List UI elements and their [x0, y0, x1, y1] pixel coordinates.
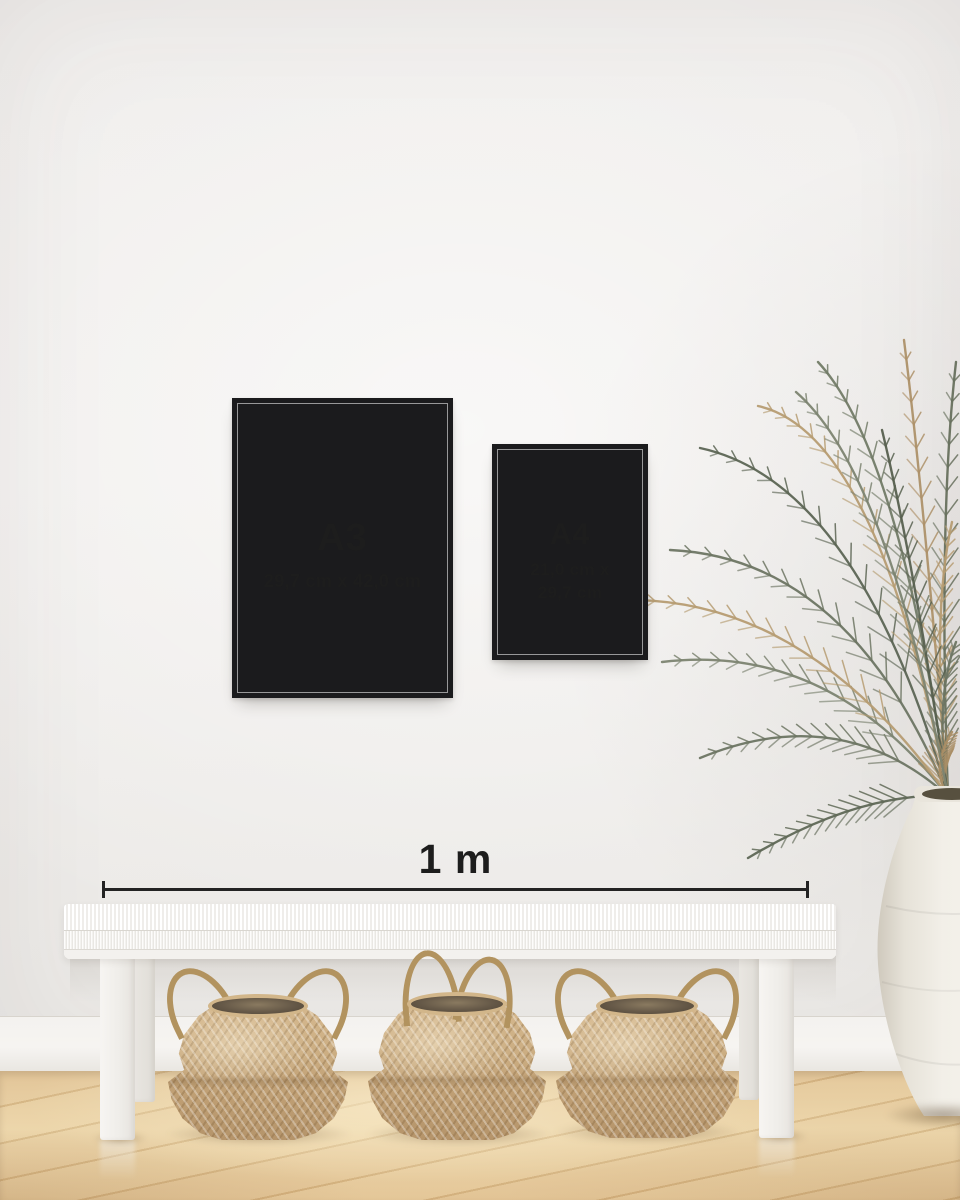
scale-label: 1 m: [102, 836, 809, 883]
leg-reflection-right: [759, 1138, 794, 1178]
bench-seat: [64, 904, 836, 959]
basket-opening: [407, 992, 507, 1016]
measurement-line: [102, 888, 809, 891]
room-scene: A3 29,7 cm x 42,0 cm A4 21,0 cm x 29,7 c…: [0, 0, 960, 1200]
poster-a4-label: A4: [550, 518, 590, 552]
poster-frame-a4: A4 21,0 cm x 29,7 cm: [492, 444, 648, 660]
basket-opening: [208, 994, 309, 1018]
poster-frame-a3: A3 29,7 cm x 42,0 cm: [232, 398, 453, 698]
poster-a4: A4 21,0 cm x 29,7 cm: [497, 449, 643, 655]
basket-body: [368, 1003, 546, 1140]
poster-a4-dimensions: 21,0 cm x 29,7 cm: [530, 559, 609, 605]
bench-leg-right-back: [739, 956, 759, 1100]
scale-left-tick: [102, 881, 105, 898]
bench-leg-left-back: [133, 956, 155, 1102]
scale-right-tick: [806, 881, 809, 898]
poster-a3: A3 29,7 cm x 42,0 cm: [237, 403, 448, 693]
poster-a3-label: A3: [317, 517, 368, 560]
poster-a4-dimensions-line2: 29,7 cm: [538, 583, 602, 602]
poster-a3-dimensions: 29,7 cm x 42,0 cm: [264, 569, 421, 593]
leg-reflection-left: [100, 1140, 135, 1180]
vase: [866, 786, 960, 1120]
seagrass-basket-middle: [368, 966, 546, 1140]
basket-opening: [596, 994, 698, 1018]
bench-leg-left-front: [100, 956, 135, 1140]
seagrass-basket-right: [556, 968, 738, 1138]
poster-a4-dimensions-line1: 21,0 cm x: [530, 560, 609, 579]
bench-leg-right-front: [759, 956, 794, 1138]
seagrass-basket-left: [168, 968, 348, 1140]
vase-shape: [866, 786, 960, 1120]
